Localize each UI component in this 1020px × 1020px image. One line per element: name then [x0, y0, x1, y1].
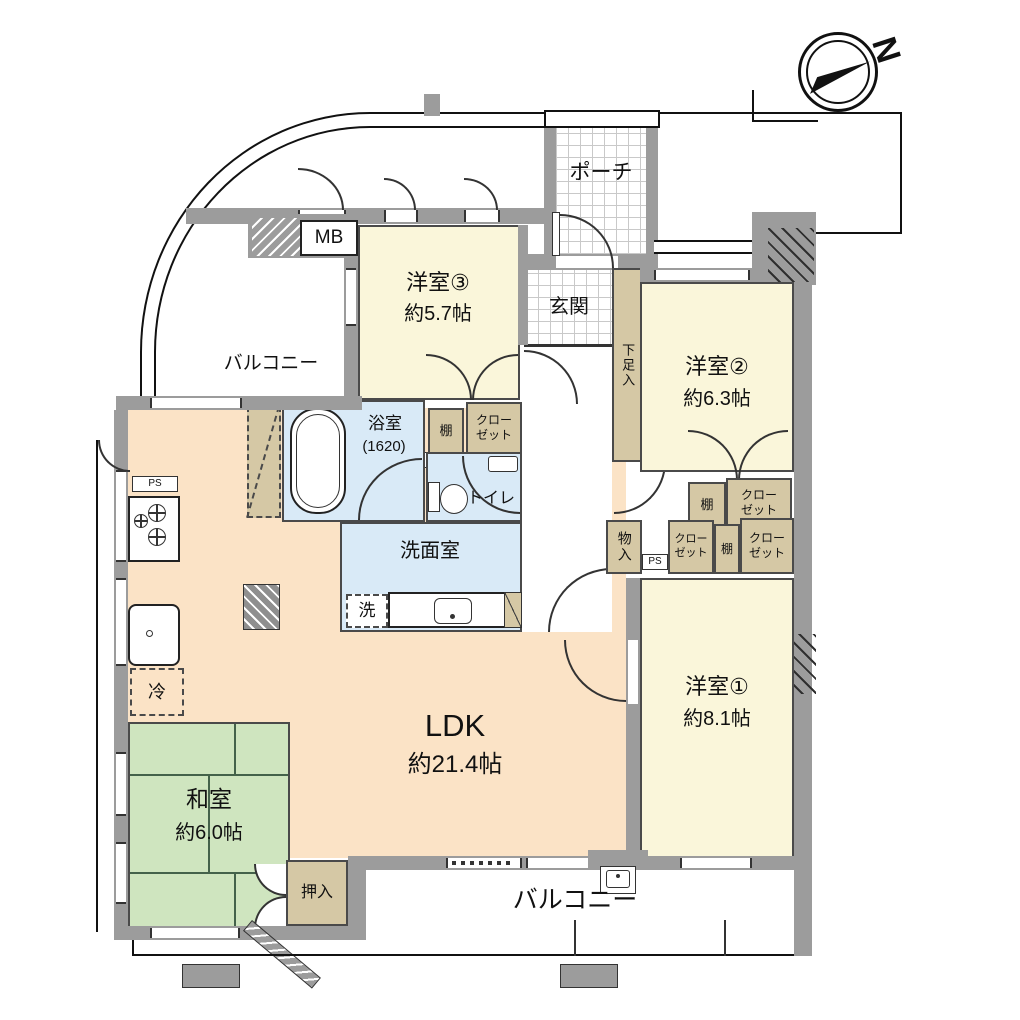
outline-right-step: [816, 232, 902, 234]
fridge-space: 冷: [130, 668, 184, 716]
shelf-hall: 棚: [714, 524, 740, 574]
closet-hall-left: クロー ゼット: [668, 520, 714, 574]
meter-box: MB: [300, 220, 358, 256]
floorplan-canvas: N MB バルコニー ポーチ 玄関 下足入 洋室③ 約5.7帖 棚 クロー ゼッ…: [0, 0, 1020, 1020]
stove-burner-1: [148, 504, 166, 522]
room1-size: 約8.1帖: [650, 706, 784, 732]
shelf-room3: 棚: [428, 408, 464, 454]
roof-notch: [424, 94, 440, 116]
closet-room3-line2: ゼット: [476, 428, 512, 443]
south-window-3: [680, 858, 752, 868]
tatami-line-v1: [234, 724, 236, 774]
room2-size: 約6.3帖: [650, 386, 784, 412]
washer-space: 洗: [346, 594, 388, 628]
balcony-north-label: バルコニー: [196, 350, 346, 378]
balcony-south-label: バルコニー: [460, 884, 690, 918]
oshiire-storage: 押入: [286, 860, 348, 926]
room1-name: 洋室①: [650, 672, 784, 702]
slop-sink-drain: [616, 874, 620, 878]
balcony-edge-bottom: [132, 954, 812, 956]
pipe-space-mid: PS: [642, 554, 668, 570]
toilet-tank: [428, 482, 440, 512]
genkan-label: 玄関: [534, 294, 604, 320]
west-door-swing: [98, 440, 130, 472]
porch-label: ポーチ: [556, 158, 646, 188]
room2-name: 洋室②: [650, 352, 784, 382]
japanese-room-size: 約6.0帖: [139, 820, 279, 846]
ground-block-1: [182, 964, 240, 988]
closet-hall-left-line2: ゼット: [675, 547, 708, 561]
japanese-room-name: 和室: [139, 784, 279, 814]
west-top-window: [150, 398, 242, 408]
stove-burner-2: [134, 514, 148, 528]
south-window-2: [526, 858, 592, 868]
bath-size: (1620): [344, 436, 424, 458]
bath-name: 浴室: [346, 412, 424, 436]
corner-mark-vertical: [752, 90, 754, 122]
south-window-1-rail: [452, 861, 514, 865]
bathtub-inner-line: [296, 414, 340, 508]
window-room3-left: [346, 268, 356, 326]
room2-north-window: [654, 270, 750, 280]
wall-genkan-left: [518, 225, 528, 345]
washitsu-south-window: [150, 928, 240, 938]
kitchen-sink-faucet: [146, 630, 153, 637]
closet-hall-left-line1: クロー: [675, 533, 708, 547]
room1-door-gap: [628, 640, 638, 704]
north-wall: [186, 208, 556, 224]
west-window-2: [116, 578, 126, 666]
closet-room2-line2: ゼット: [741, 503, 777, 518]
washroom-label: 洗面室: [380, 538, 480, 564]
north-window-2: [384, 210, 418, 222]
north-window-3: [464, 210, 500, 222]
outline-right: [900, 112, 902, 234]
room1-left-wall: [626, 578, 640, 858]
washroom-corner-piece: [504, 592, 522, 628]
stove-burner-3: [148, 528, 166, 546]
shoe-storage: 下足入: [612, 268, 642, 462]
entrance-door-leaf: [552, 212, 560, 256]
ne-corner-hatch: [768, 228, 814, 283]
east-wall: [794, 282, 812, 868]
west-window-3: [116, 752, 126, 816]
ldk-name: LDK: [395, 708, 515, 744]
closet-hall-right: クロー ゼット: [740, 518, 794, 574]
balcony-divider-2: [724, 920, 726, 956]
vanity-sink: [434, 598, 472, 624]
west-outer-line: [96, 440, 98, 932]
porch-top-wall: [544, 110, 660, 128]
balcony-divider-1: [574, 920, 576, 956]
west-window-4: [116, 842, 126, 904]
closet-hall-right-line1: クロー: [749, 531, 785, 546]
pipe-space-kitchen: PS: [132, 476, 178, 492]
tatami-line-v3: [234, 874, 236, 928]
mb-hatch: [252, 218, 300, 256]
room3-size: 約5.7帖: [368, 300, 508, 328]
genkan-step-line: [524, 344, 612, 347]
kitchen-sink: [128, 604, 180, 666]
ldk-size: 約21.4帖: [375, 750, 535, 780]
ldk-column: [243, 584, 280, 630]
closet-hall-right-line2: ゼット: [749, 546, 785, 561]
closet-room3: クロー ゼット: [466, 402, 522, 454]
ground-block-2: [560, 964, 618, 988]
corridor-railing: [654, 240, 752, 254]
outline-top: [658, 112, 902, 114]
corner-mark-horizontal: [752, 120, 818, 122]
room3-name: 洋室③: [368, 268, 508, 298]
toilet-label: トイレ: [462, 488, 520, 510]
west-window-1: [116, 470, 126, 562]
monoire-storage: 物入: [606, 520, 642, 574]
balcony-right-wall: [794, 868, 812, 956]
closet-room2-line1: クロー: [741, 488, 777, 503]
closet-room3-line1: クロー: [476, 413, 512, 428]
balcony-edge-left: [132, 940, 134, 956]
vanity-sink-drain: [450, 614, 455, 619]
